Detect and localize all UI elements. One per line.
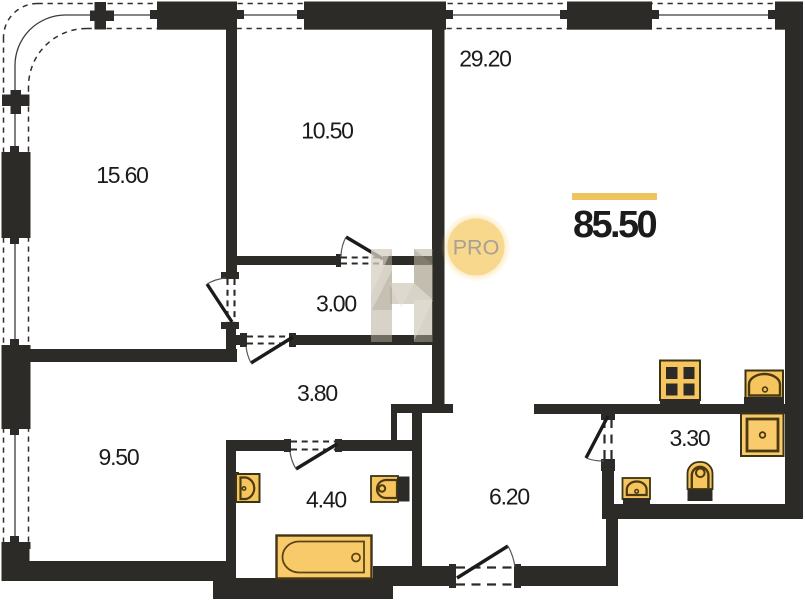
- svg-text:10.50: 10.50: [301, 118, 353, 144]
- svg-text:3.30: 3.30: [670, 425, 710, 451]
- svg-text:29.20: 29.20: [459, 46, 511, 72]
- svg-text:85.50: 85.50: [573, 204, 657, 246]
- svg-text:15.60: 15.60: [96, 162, 148, 188]
- svg-text:9.50: 9.50: [99, 444, 139, 470]
- svg-text:3.00: 3.00: [316, 291, 356, 317]
- svg-text:PRO: PRO: [453, 236, 500, 260]
- svg-text:6.20: 6.20: [489, 484, 529, 510]
- svg-text:4.40: 4.40: [306, 487, 346, 513]
- svg-text:3.80: 3.80: [297, 380, 337, 406]
